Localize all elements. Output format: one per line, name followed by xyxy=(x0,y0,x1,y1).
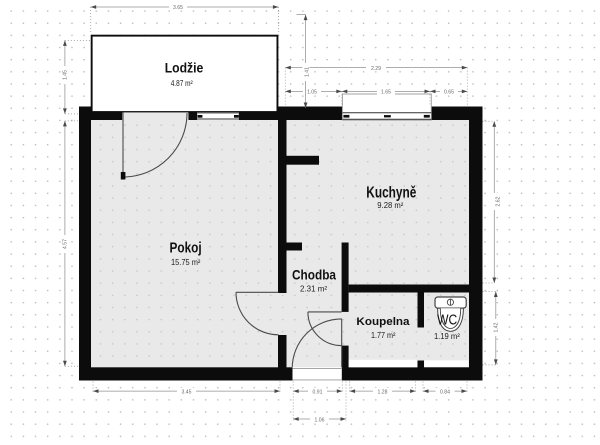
svg-text:2.31 m²: 2.31 m² xyxy=(300,284,327,293)
svg-text:0.91: 0.91 xyxy=(313,389,323,395)
svg-text:1.45: 1.45 xyxy=(62,70,68,80)
svg-text:WC: WC xyxy=(437,312,457,328)
svg-text:0.84: 0.84 xyxy=(440,389,450,395)
svg-text:1.65: 1.65 xyxy=(381,90,391,96)
svg-text:1.05: 1.05 xyxy=(307,90,317,96)
svg-text:3.45: 3.45 xyxy=(182,389,192,395)
svg-text:1.19 m²: 1.19 m² xyxy=(434,332,460,341)
svg-text:1.28: 1.28 xyxy=(378,389,388,395)
svg-text:Kuchyně: Kuchyně xyxy=(366,184,416,201)
svg-text:3.65: 3.65 xyxy=(173,5,183,11)
svg-text:1.06: 1.06 xyxy=(315,417,325,423)
svg-text:0.65: 0.65 xyxy=(444,90,454,96)
svg-text:9.28 m²: 9.28 m² xyxy=(377,201,403,210)
svg-text:1.42: 1.42 xyxy=(493,322,499,332)
svg-text:Lodžie: Lodžie xyxy=(165,61,204,76)
svg-text:Koupelna: Koupelna xyxy=(356,316,410,328)
svg-text:2.29: 2.29 xyxy=(371,66,381,72)
svg-text:1.41: 1.41 xyxy=(305,67,311,77)
svg-text:4.57: 4.57 xyxy=(62,239,68,249)
svg-text:1.77 m²: 1.77 m² xyxy=(371,331,396,340)
svg-text:Pokoj: Pokoj xyxy=(170,240,202,257)
svg-text:4.87 m²: 4.87 m² xyxy=(171,79,193,88)
svg-text:2.62: 2.62 xyxy=(495,196,501,206)
svg-text:Chodba: Chodba xyxy=(292,268,336,283)
svg-text:15.75 m²: 15.75 m² xyxy=(171,258,201,267)
